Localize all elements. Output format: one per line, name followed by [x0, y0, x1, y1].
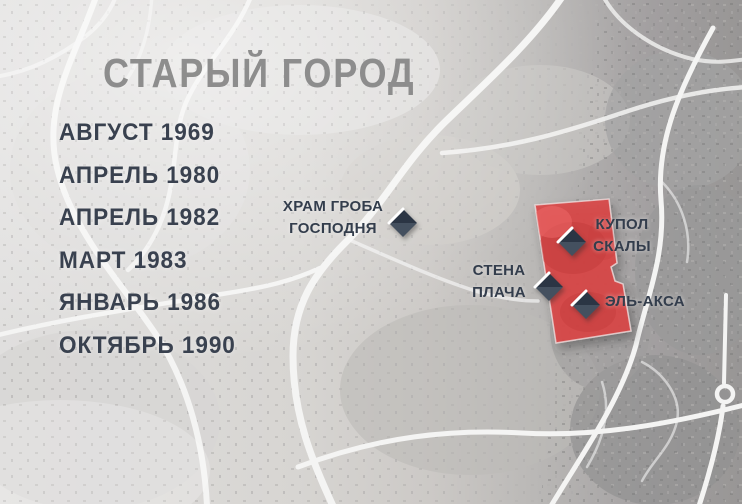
date-item: МАРТ 1983: [59, 240, 236, 283]
date-item: ЯНВАРЬ 1986: [59, 282, 236, 325]
diamond-marker-icon: [569, 288, 603, 322]
date-item: АВГУСТ 1969: [59, 112, 236, 155]
dome-of-the-rock-label: КУПОЛ СКАЛЫ: [576, 214, 668, 258]
holy-sepulchre-label-line2: ГОСПОДНЯ: [289, 220, 377, 237]
date-list: АВГУСТ 1969 АПРЕЛЬ 1980 АПРЕЛЬ 1982 МАРТ…: [59, 112, 247, 368]
al-aqsa-label: ЭЛЬ-АКСА: [605, 291, 715, 313]
western-wall-label-line2: ПЛАЧА: [472, 284, 526, 301]
al-aqsa-marker: [569, 288, 603, 322]
diamond-marker-icon: [386, 206, 420, 240]
map-title: СТАРЫЙ ГОРОД: [103, 50, 415, 97]
date-item: АПРЕЛЬ 1982: [59, 197, 236, 240]
date-item: ОКТЯБРЬ 1990: [59, 325, 236, 368]
western-wall-marker: [532, 270, 566, 304]
western-wall-label-line1: СТЕНА: [473, 262, 526, 279]
diamond-marker-icon: [532, 270, 566, 304]
date-item: АПРЕЛЬ 1980: [59, 155, 236, 198]
old-city-infographic: СТАРЫЙ ГОРОД АВГУСТ 1969 АПРЕЛЬ 1980 АПР…: [0, 0, 742, 504]
dome-of-the-rock-label-line1: КУПОЛ: [596, 216, 649, 233]
al-aqsa-label-line1: ЭЛЬ-АКСА: [605, 293, 685, 310]
dome-of-the-rock-label-line2: СКАЛЫ: [593, 238, 651, 255]
diamond-marker-icon: [555, 225, 589, 259]
holy-sepulchre-marker: [386, 206, 420, 240]
dome-of-the-rock-marker: [555, 225, 589, 259]
western-wall-label: СТЕНА ПЛАЧА: [454, 260, 544, 304]
holy-sepulchre-label: ХРАМ ГРОБА ГОСПОДНЯ: [263, 196, 403, 240]
holy-sepulchre-label-line1: ХРАМ ГРОБА: [283, 198, 383, 215]
